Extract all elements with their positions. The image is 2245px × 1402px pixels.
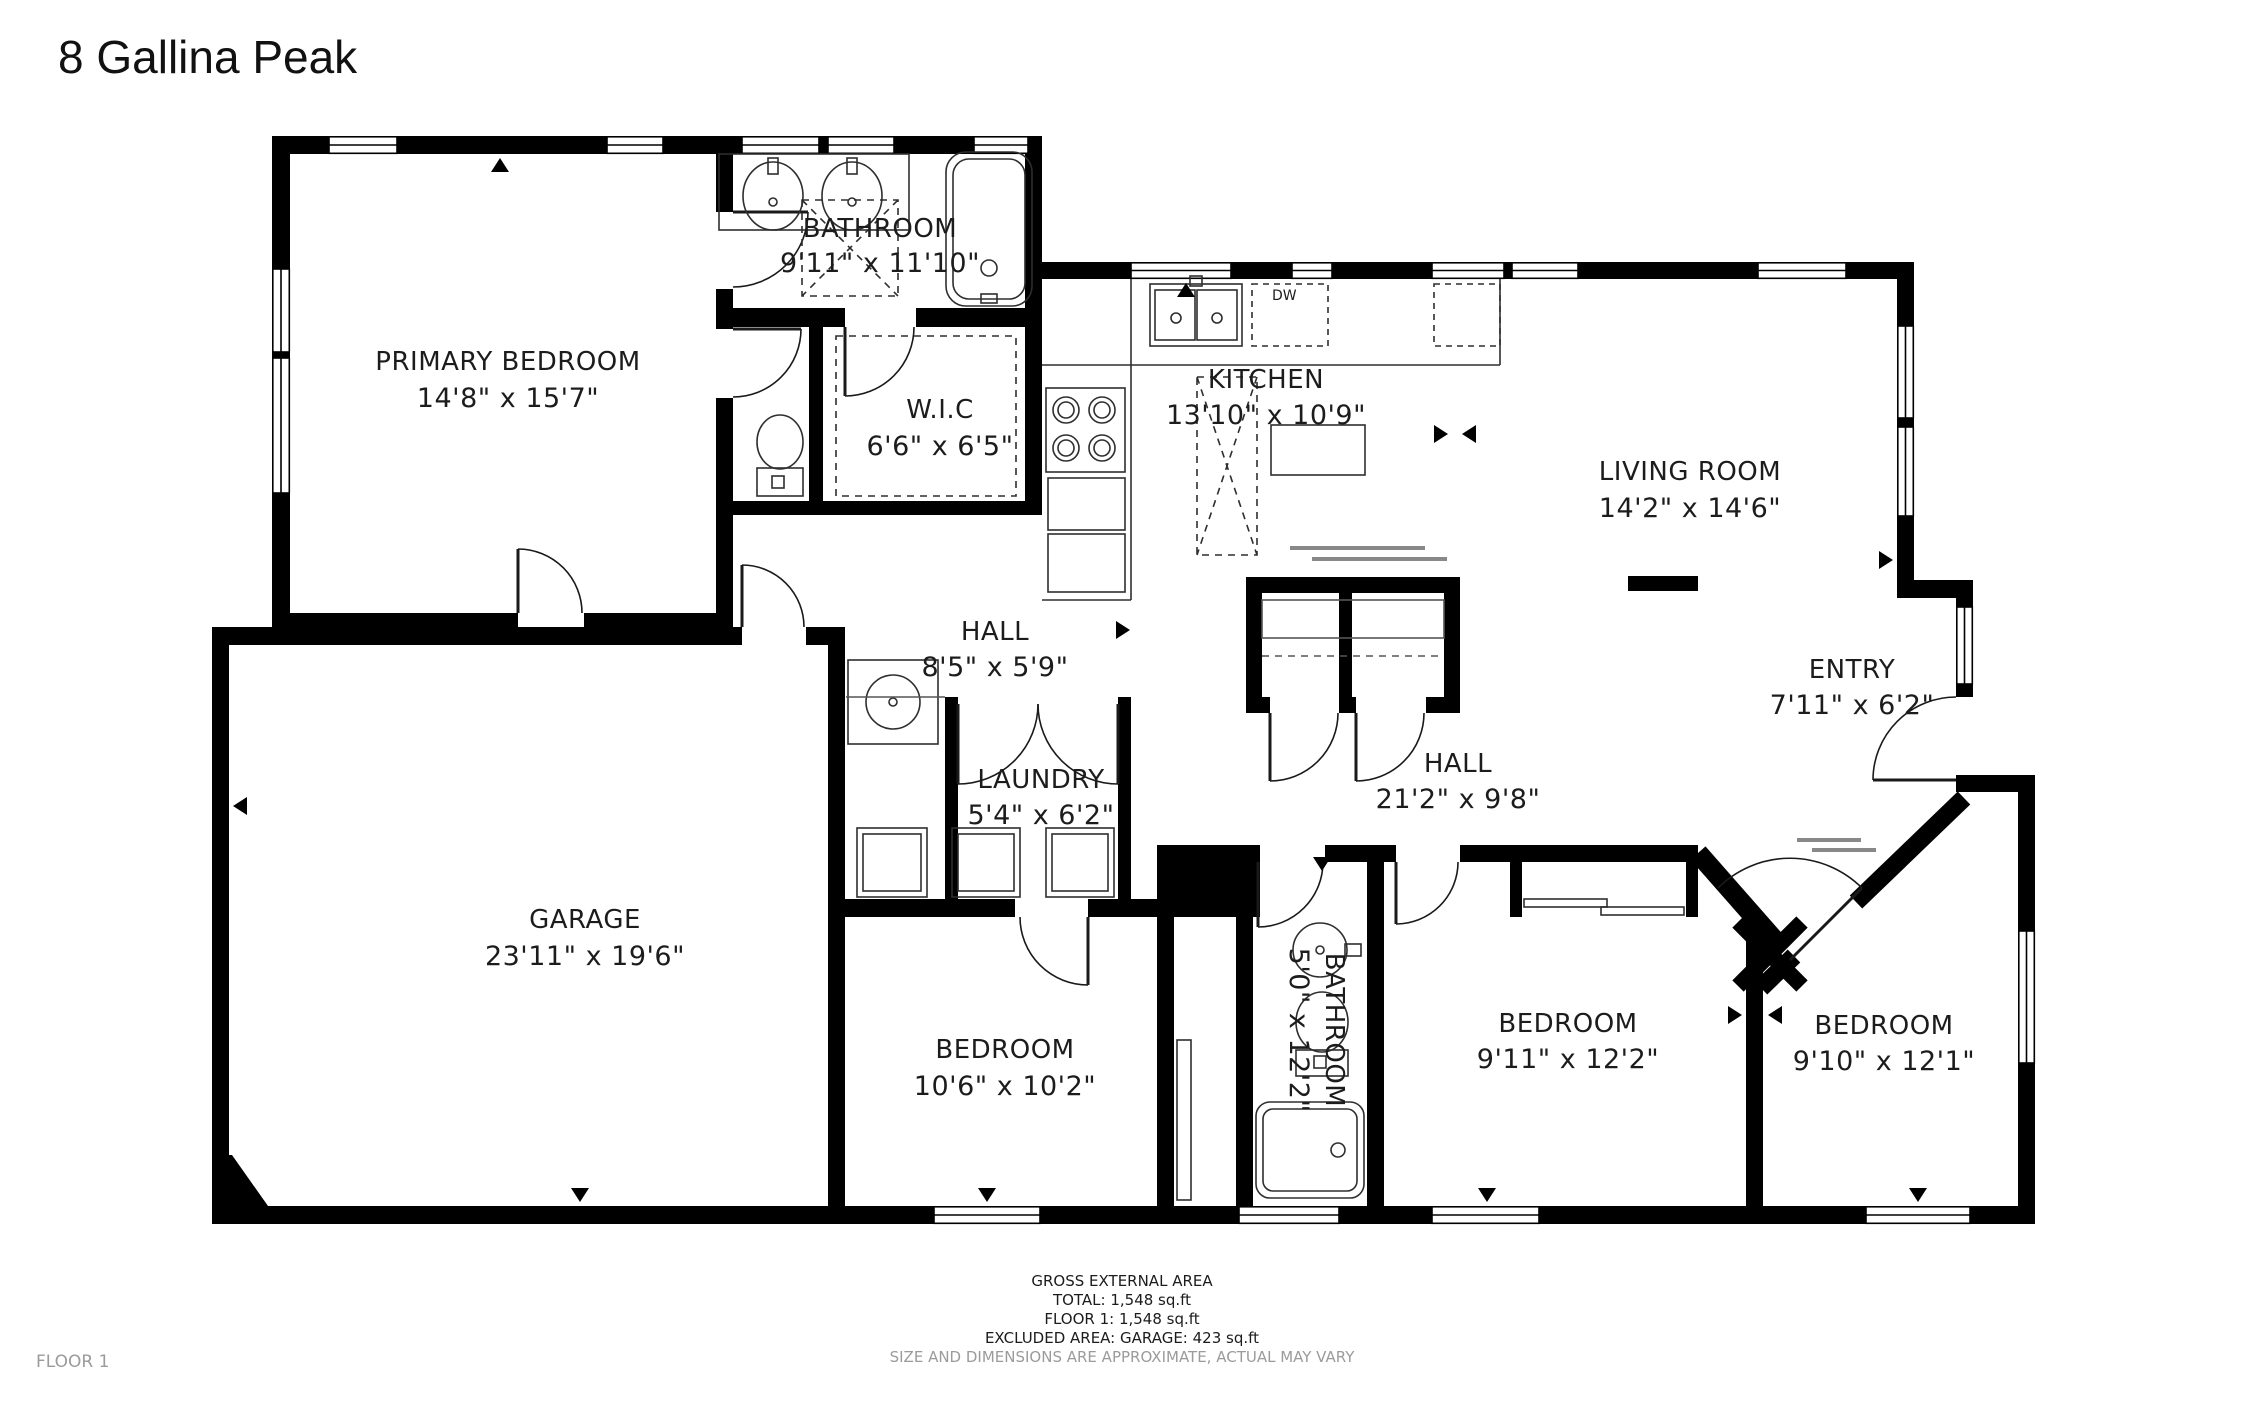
door-bedroom-mid <box>1020 917 1088 985</box>
closet-shelf <box>1262 600 1444 656</box>
window <box>329 137 397 154</box>
svg-text:9'10" x 12'1": 9'10" x 12'1" <box>1793 1046 1975 1077</box>
svg-text:7'11" x 6'2": 7'11" x 6'2" <box>1770 690 1935 721</box>
room-label-entry: ENTRY 7'11" x 6'2" <box>1770 655 1935 721</box>
svg-text:5'4" x 6'2": 5'4" x 6'2" <box>967 800 1114 831</box>
area-summary: GROSS EXTERNAL AREA TOTAL: 1,548 sq.ft F… <box>772 1272 1472 1367</box>
svg-text:21'2" x 9'8": 21'2" x 9'8" <box>1376 784 1541 815</box>
svg-text:10'6" x 10'2": 10'6" x 10'2" <box>914 1071 1096 1102</box>
fridge-icon <box>1434 284 1500 346</box>
window <box>1898 427 1914 516</box>
window <box>828 137 894 154</box>
svg-text:PRIMARY BEDROOM: PRIMARY BEDROOM <box>375 347 640 377</box>
dimension-markers <box>233 158 1927 1202</box>
svg-text:5'0" x 12'2": 5'0" x 12'2" <box>1283 948 1314 1113</box>
console-table <box>1797 840 1876 850</box>
disclaimer: SIZE AND DIMENSIONS ARE APPROXIMATE, ACT… <box>772 1348 1472 1367</box>
room-label-bedroom-far-right: BEDROOM 9'10" x 12'1" <box>1793 1011 1975 1077</box>
room-label-hall-large: HALL 21'2" x 9'8" <box>1376 749 1541 815</box>
room-label-kitchen: KITCHEN 13'10" x 10'9" <box>1166 365 1366 431</box>
excluded-area: EXCLUDED AREA: GARAGE: 423 sq.ft <box>772 1329 1472 1348</box>
window <box>1512 263 1578 279</box>
floor-plan: PRIMARY BEDROOM 14'8" x 15'7" BATHROOM 9… <box>0 0 2245 1402</box>
svg-text:14'2" x 14'6": 14'2" x 14'6" <box>1599 493 1781 524</box>
room-label-wic: W.I.C 6'6" x 6'5" <box>866 395 1013 462</box>
window <box>273 269 290 352</box>
svg-text:LIVING ROOM: LIVING ROOM <box>1599 457 1781 487</box>
window <box>934 1207 1040 1224</box>
console-table <box>1290 548 1447 559</box>
room-label-bedroom-mid: BEDROOM 10'6" x 10'2" <box>914 1035 1096 1102</box>
svg-text:HALL: HALL <box>1424 749 1492 779</box>
svg-text:BEDROOM: BEDROOM <box>1498 1009 1637 1039</box>
room-label-bathroom-small: BATHROOM 5'0" x 12'2" <box>1283 948 1349 1113</box>
floor1-area: FLOOR 1: 1,548 sq.ft <box>772 1310 1472 1329</box>
svg-text:23'11" x 19'6": 23'11" x 19'6" <box>485 941 685 972</box>
svg-text:9'11" x 11'10": 9'11" x 11'10" <box>780 248 980 279</box>
sink-icon <box>743 158 803 230</box>
svg-text:6'6" x 6'5": 6'6" x 6'5" <box>866 431 1013 462</box>
stove-icon <box>1046 388 1125 472</box>
window <box>1432 263 1504 279</box>
svg-text:KITCHEN: KITCHEN <box>1208 365 1324 395</box>
svg-text:BATHROOM: BATHROOM <box>1319 953 1349 1107</box>
svg-text:BEDROOM: BEDROOM <box>1814 1011 1953 1041</box>
svg-text:13'10" x 10'9": 13'10" x 10'9" <box>1166 400 1366 431</box>
door-bedroom-right <box>1396 862 1458 924</box>
door-hall-closet-left <box>1270 713 1338 781</box>
svg-text:GARAGE: GARAGE <box>529 905 641 935</box>
svg-text:BATHROOM: BATHROOM <box>803 214 957 244</box>
washer-icon <box>952 828 1020 897</box>
room-label-bathroom-main: BATHROOM 9'11" x 11'10" <box>780 214 980 279</box>
gross-area-title: GROSS EXTERNAL AREA <box>772 1272 1472 1291</box>
dishwasher-label: DW <box>1272 288 1297 304</box>
window <box>1898 326 1914 418</box>
room-label-laundry: LAUNDRY 5'4" x 6'2" <box>967 765 1114 831</box>
room-label-primary-bedroom: PRIMARY BEDROOM 14'8" x 15'7" <box>375 347 640 414</box>
dryer-icon <box>1046 828 1114 897</box>
door-primary-bedroom <box>518 549 582 613</box>
window <box>742 137 819 154</box>
bathtub-icon <box>946 152 1032 306</box>
total-area: TOTAL: 1,548 sq.ft <box>772 1291 1472 1310</box>
oven-cabinet <box>1048 478 1125 592</box>
window <box>273 358 290 493</box>
svg-text:8'5" x 5'9": 8'5" x 5'9" <box>921 652 1068 683</box>
kitchen-sink-icon <box>1150 276 1242 346</box>
window <box>1131 263 1231 279</box>
window <box>1866 1207 1970 1224</box>
walls <box>212 136 2035 1224</box>
kitchen-island <box>1271 425 1365 475</box>
washer-icon <box>857 828 927 897</box>
room-label-living-room: LIVING ROOM 14'2" x 14'6" <box>1599 457 1781 524</box>
window <box>1239 1207 1339 1224</box>
svg-text:9'11" x 12'2": 9'11" x 12'2" <box>1477 1044 1659 1075</box>
window <box>607 137 663 154</box>
svg-text:14'8" x 15'7": 14'8" x 15'7" <box>417 383 599 414</box>
svg-text:LAUNDRY: LAUNDRY <box>977 765 1104 795</box>
window <box>2019 931 2035 1063</box>
door-toilet-room <box>733 329 801 397</box>
room-label-hall-small: HALL 8'5" x 5'9" <box>921 617 1068 683</box>
closet-door <box>1177 1040 1191 1200</box>
room-label-bedroom-right: BEDROOM 9'11" x 12'2" <box>1477 1009 1659 1075</box>
svg-text:BEDROOM: BEDROOM <box>935 1035 1074 1065</box>
bathtub-icon <box>1256 1102 1364 1198</box>
window <box>1292 263 1332 279</box>
svg-text:W.I.C: W.I.C <box>906 395 974 425</box>
svg-text:ENTRY: ENTRY <box>1809 655 1896 685</box>
window <box>1957 607 1973 684</box>
door-hall-closet-right <box>1356 713 1424 781</box>
svg-text:HALL: HALL <box>961 617 1029 647</box>
toilet-icon <box>757 415 803 496</box>
window <box>1432 1207 1539 1224</box>
sliding-door <box>1524 899 1684 915</box>
room-label-garage: GARAGE 23'11" x 19'6" <box>485 905 685 972</box>
door-garage <box>742 565 804 627</box>
floor-number-label: FLOOR 1 <box>36 1352 109 1372</box>
window <box>974 137 1028 154</box>
door-wic <box>845 327 914 396</box>
door-bathroom-small <box>1258 862 1323 927</box>
window <box>1758 263 1846 279</box>
windows <box>273 137 2035 1224</box>
